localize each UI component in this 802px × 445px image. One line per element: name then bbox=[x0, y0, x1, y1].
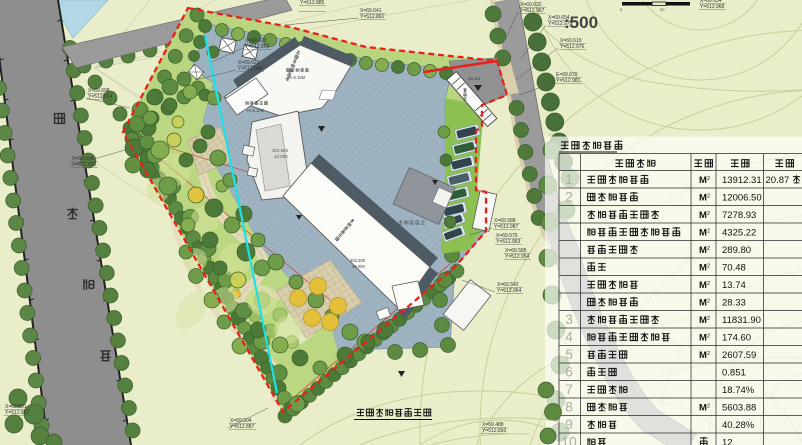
svg-text:2: 2 bbox=[565, 188, 573, 204]
svg-text:H=5.10M: H=5.10M bbox=[247, 108, 265, 113]
svg-text:11831.90: 11831.90 bbox=[722, 315, 761, 326]
svg-text:Y=512.887: Y=512.887 bbox=[230, 424, 255, 430]
svg-text:12: 12 bbox=[722, 437, 733, 445]
svg-text:2: 2 bbox=[707, 316, 710, 322]
svg-text:M: M bbox=[699, 332, 707, 343]
svg-text::500: :500 bbox=[564, 13, 598, 32]
svg-text:M: M bbox=[699, 280, 707, 291]
svg-text:5: 5 bbox=[565, 346, 573, 362]
svg-text:±0.000: ±0.000 bbox=[352, 264, 365, 269]
svg-text:M: M bbox=[699, 245, 707, 256]
svg-text:2607.59: 2607.59 bbox=[722, 350, 756, 361]
svg-text:H=5.10M: H=5.10M bbox=[288, 75, 306, 80]
svg-text:2: 2 bbox=[707, 228, 710, 234]
svg-text:Y=512.857: Y=512.857 bbox=[5, 410, 30, 416]
svg-text:2: 2 bbox=[707, 193, 710, 199]
svg-text:4325.22: 4325.22 bbox=[722, 227, 756, 238]
svg-text:Y=512.846: Y=512.846 bbox=[238, 66, 263, 72]
svg-text:2: 2 bbox=[707, 176, 710, 182]
svg-text:Y=512.861: Y=512.861 bbox=[360, 14, 385, 20]
svg-text:M: M bbox=[699, 315, 707, 326]
svg-text:M: M bbox=[699, 297, 707, 308]
svg-text:M: M bbox=[699, 402, 707, 413]
svg-text:13912.31: 13912.31 bbox=[722, 175, 762, 186]
svg-text:6: 6 bbox=[565, 363, 573, 379]
svg-text:Y=512.987: Y=512.987 bbox=[494, 224, 519, 230]
svg-text:174.60: 174.60 bbox=[722, 332, 751, 343]
svg-text:28.33: 28.33 bbox=[722, 297, 746, 308]
svg-text:2: 2 bbox=[707, 211, 710, 217]
svg-text:2: 2 bbox=[707, 281, 710, 287]
svg-text:2: 2 bbox=[707, 298, 710, 304]
svg-text:18.74%: 18.74% bbox=[722, 385, 755, 396]
svg-text:Y=512.860: Y=512.860 bbox=[245, 44, 270, 50]
svg-text:20.87: 20.87 bbox=[766, 175, 790, 186]
svg-text:13.74: 13.74 bbox=[722, 280, 746, 291]
svg-text:4: 4 bbox=[565, 328, 573, 344]
svg-text:Y=512.834: Y=512.834 bbox=[88, 94, 113, 100]
svg-text:Y=512.981: Y=512.981 bbox=[556, 78, 581, 84]
svg-text:5603.88: 5603.88 bbox=[722, 402, 756, 413]
svg-text:Y=512.968: Y=512.968 bbox=[700, 4, 725, 10]
svg-text:3: 3 bbox=[565, 311, 573, 327]
svg-text:i30.4%: i30.4% bbox=[468, 76, 481, 81]
svg-text:±0.000: ±0.000 bbox=[274, 154, 288, 159]
svg-text:M: M bbox=[699, 175, 707, 186]
svg-text:Y=512.893: Y=512.893 bbox=[482, 428, 507, 434]
svg-text:1: 1 bbox=[565, 171, 573, 187]
svg-text:Y=512.976: Y=512.976 bbox=[560, 44, 585, 50]
svg-text:0.851: 0.851 bbox=[722, 367, 746, 378]
svg-text:9: 9 bbox=[565, 416, 573, 432]
svg-text:289.80: 289.80 bbox=[722, 245, 751, 256]
svg-text:Y=512.964: Y=512.964 bbox=[497, 288, 522, 294]
svg-text:12006.50: 12006.50 bbox=[722, 192, 762, 203]
svg-text:10: 10 bbox=[561, 433, 577, 445]
svg-text:20: 20 bbox=[660, 7, 665, 12]
svg-text:2: 2 bbox=[707, 403, 710, 409]
svg-text:8: 8 bbox=[565, 398, 573, 414]
svg-text:Y=512.963: Y=512.963 bbox=[496, 239, 521, 245]
svg-text:Y=512.954: Y=512.954 bbox=[505, 254, 530, 260]
svg-text:302.500: 302.500 bbox=[272, 148, 289, 153]
svg-text:70.48: 70.48 bbox=[722, 262, 746, 273]
svg-text:2: 2 bbox=[707, 246, 710, 252]
svg-text:M: M bbox=[699, 227, 707, 238]
svg-text:M: M bbox=[699, 350, 707, 361]
svg-text:2: 2 bbox=[707, 351, 710, 357]
svg-text:2: 2 bbox=[707, 333, 710, 339]
svg-text:2: 2 bbox=[707, 263, 710, 269]
svg-text:M: M bbox=[699, 210, 707, 221]
svg-text:7278.93: 7278.93 bbox=[722, 210, 756, 221]
svg-text:Y=512.885: Y=512.885 bbox=[300, 0, 325, 6]
svg-text:Y=512.836: Y=512.836 bbox=[72, 162, 97, 168]
svg-text:M: M bbox=[699, 262, 707, 273]
svg-text:302.500: 302.500 bbox=[350, 258, 366, 263]
svg-text:Y=512.967: Y=512.967 bbox=[520, 8, 545, 14]
svg-text:M: M bbox=[699, 192, 707, 203]
svg-text:7: 7 bbox=[565, 381, 573, 397]
svg-text:40.28%: 40.28% bbox=[722, 420, 755, 431]
